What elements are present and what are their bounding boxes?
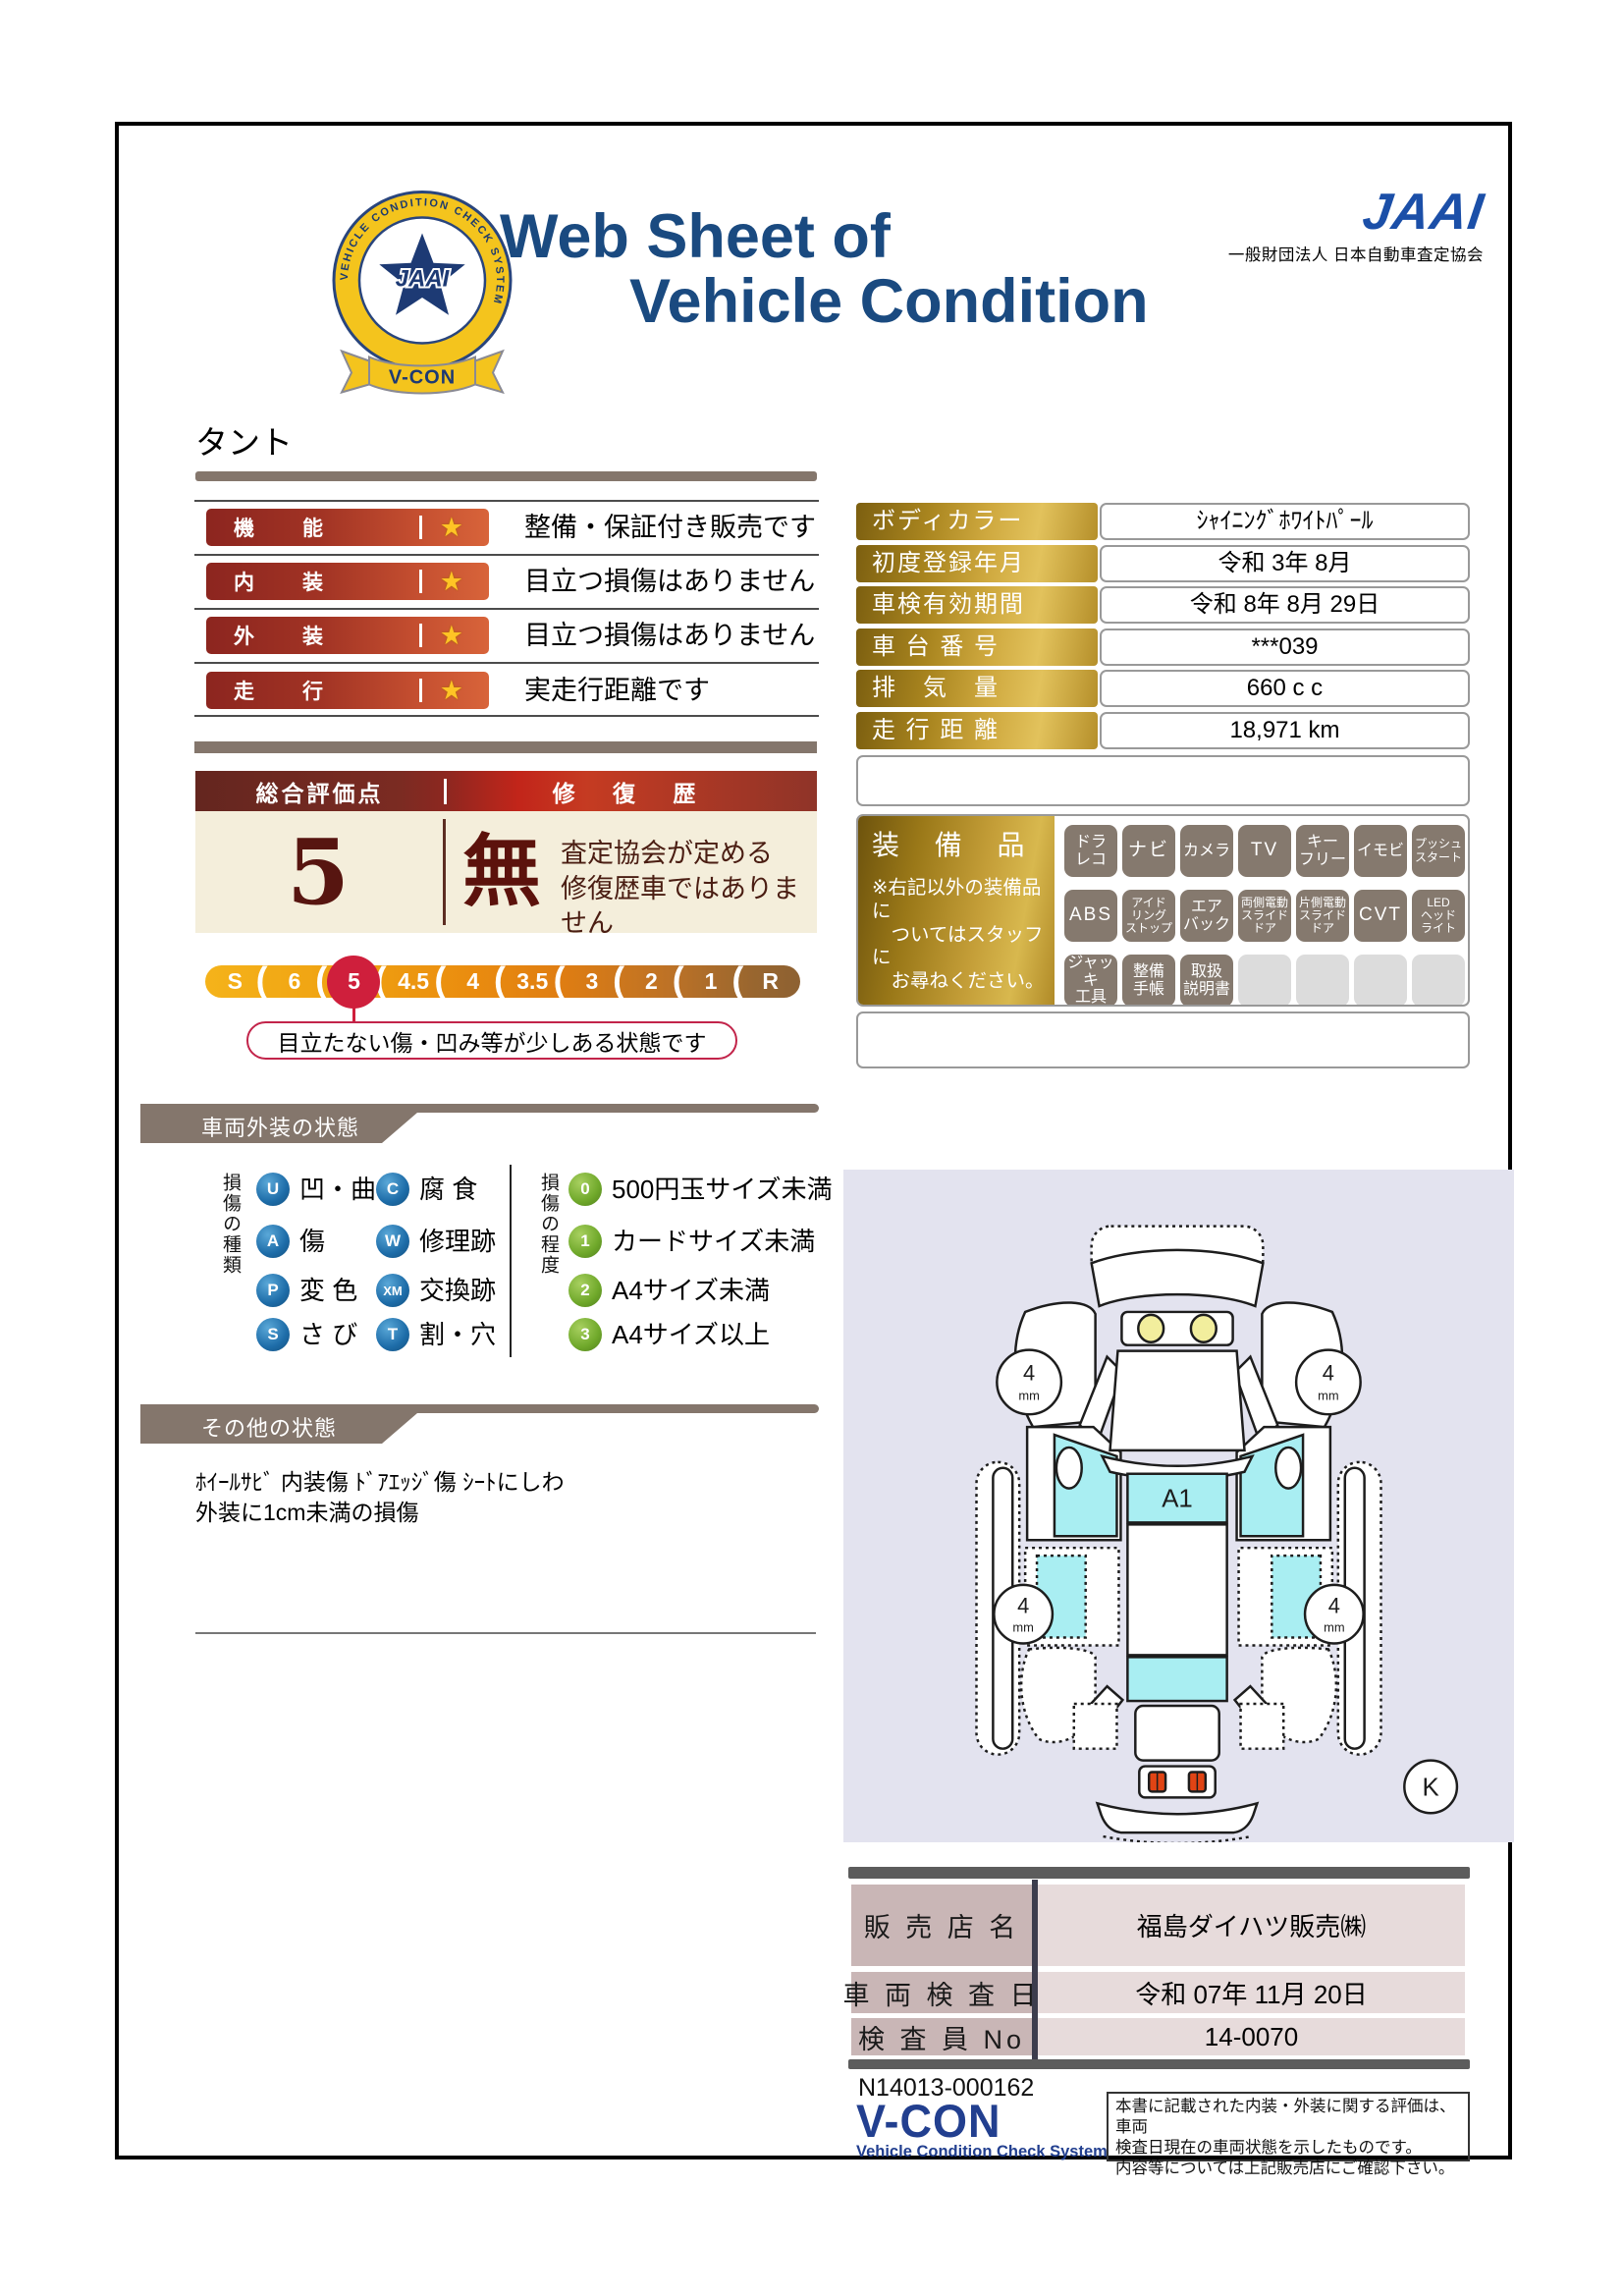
legend-divider xyxy=(510,1165,512,1357)
scale-segment-5-selected: 5 xyxy=(324,965,384,998)
rating-bar: 内 装 ★ xyxy=(206,563,489,600)
tire-depth-unit: mm xyxy=(1018,1388,1039,1402)
inspector-no-label: 検 査 員 No xyxy=(851,2018,1032,2055)
damage-type-icon-s: S xyxy=(256,1318,290,1351)
rating-description: 実走行距離です xyxy=(524,672,710,709)
equipment-badge-jack-tools: ジャッキ 工具 xyxy=(1064,955,1117,1007)
vcon-badge-icon: VEHICLE CONDITION CHECK SYSTEM JAAI V-CO… xyxy=(318,183,526,413)
damage-type-axis-label: 損傷の種類 xyxy=(217,1173,243,1369)
equipment-note: ※右記以外の装備品に ついてはスタッフに お尋ねください。 xyxy=(872,877,1055,994)
equipment-badge-owners-manual: 取扱 説明書 xyxy=(1180,955,1233,1007)
disclaimer-line3: 内容等については上記販売店にご確認下さい。 xyxy=(1115,2159,1461,2179)
repair-note-line1: 査定協会が定める xyxy=(561,837,817,872)
rating-divider xyxy=(419,624,422,647)
info-label-first-registration: 初度登録年月 xyxy=(856,545,1098,582)
grade-scale-bar: S 6 5 4.5 4 3.5 3 2 1 R xyxy=(205,965,800,998)
equipment-badge-idling-stop: アイド リング ストップ xyxy=(1122,890,1175,942)
info-value-first-registration: 令和 3年 8月 xyxy=(1100,545,1470,582)
equipment-title: 装 備 品 xyxy=(872,824,1055,863)
damage-type-label: 割・穴 xyxy=(419,1318,496,1351)
rating-row-interior: 内 装 ★ 目立つ損傷はありません xyxy=(194,563,819,600)
rating-label: 機 能 xyxy=(206,513,337,542)
disclaimer-line2: 検査日現在の車両状態を示したものです。 xyxy=(1115,2138,1461,2159)
damage-degree-icon-2: 2 xyxy=(568,1274,602,1307)
overall-score-value: 5 xyxy=(195,817,441,927)
section-bar xyxy=(140,1404,819,1413)
repair-note-line2: 修復歴車ではありません xyxy=(561,872,817,942)
vcon-badge-logo: VEHICLE CONDITION CHECK SYSTEM JAAI V-CO… xyxy=(318,183,526,413)
overall-score-header: 総合評価点 修 復 歴 xyxy=(195,771,817,811)
equipment-badge-empty xyxy=(1354,955,1407,1007)
inspection-date-value: 令和 07年 11月 20日 xyxy=(1038,1972,1465,2013)
rating-label: 内 装 xyxy=(206,567,337,596)
damage-degree-label: A4サイズ以上 xyxy=(612,1318,770,1351)
divider-line xyxy=(194,715,819,717)
other-condition-text: ﾎｲｰﾙｻﾋﾞ 内装傷 ﾄﾞｱｴｯｼﾞ傷 ｼｰﾄにしわ 外装に1cm未満の損傷 xyxy=(195,1467,565,1528)
damage-type-label: 腐 食 xyxy=(419,1173,477,1206)
info-value-displacement: 660 c c xyxy=(1100,670,1470,707)
tire-depth-front-right: 4 xyxy=(1323,1360,1334,1385)
rating-divider xyxy=(419,570,422,593)
rating-row-exterior: 外 装 ★ 目立つ損傷はありません xyxy=(194,617,819,654)
equipment-badge-service-book: 整備 手帳 xyxy=(1122,955,1175,1007)
rating-description: 目立つ損傷はありません xyxy=(524,563,815,600)
section-title: その他の状態 xyxy=(140,1413,417,1444)
section-exterior-condition: 車両外装の状態 xyxy=(140,1104,819,1143)
rating-bar: 走 行 ★ xyxy=(206,672,489,709)
body-divider xyxy=(443,819,446,925)
sheet-title-line1: Web Sheet of xyxy=(500,204,1149,269)
rating-description: 目立つ損傷はありません xyxy=(524,617,815,654)
badge-center-text: JAAI xyxy=(396,266,451,293)
info-value-mileage: 18,971 km xyxy=(1100,712,1470,749)
divider-rule xyxy=(848,2059,1470,2069)
damage-degree-icon-0: 0 xyxy=(568,1173,602,1206)
rating-divider xyxy=(419,516,422,539)
rating-description: 整備・保証付き販売です xyxy=(524,509,816,546)
repair-history-note: 査定協会が定める 修復歴車ではありません xyxy=(561,837,817,942)
tire-depth-unit: mm xyxy=(1324,1620,1344,1635)
equipment-badge-abs: ABS xyxy=(1064,890,1117,942)
tire-depth-front-left: 4 xyxy=(1023,1360,1035,1385)
car-diagram-svg: A1 4 mm 4 mm 4 mm 4 mm K xyxy=(843,1170,1514,1842)
overall-score-body: 5 無 査定協会が定める 修復歴車ではありません xyxy=(195,811,817,933)
equipment-badge-dashcam: ドラ レコ xyxy=(1064,825,1117,877)
info-label-body-color: ボディカラー xyxy=(856,503,1098,540)
jaai-logo: JAAI xyxy=(1175,187,1487,238)
damage-type-icon-c: C xyxy=(376,1173,409,1206)
rating-bar: 機 能 ★ xyxy=(206,509,489,546)
rating-divider xyxy=(419,679,422,702)
info-label-inspection-validity: 車検有効期間 xyxy=(856,586,1098,624)
divider-line xyxy=(195,1632,816,1634)
divider-line xyxy=(194,500,819,502)
equipment-badge-camera: カメラ xyxy=(1180,825,1233,877)
equipment-badge-both-power-slide-door: 両側電動 スライド ドア xyxy=(1238,890,1291,942)
damage-type-icon-xm: XM xyxy=(376,1274,409,1307)
equipment-gold-panel: 装 備 品 ※右記以外の装備品に ついてはスタッフに お尋ねください。 xyxy=(858,816,1055,1005)
tire-depth-unit: mm xyxy=(1012,1620,1033,1635)
damage-degree-label: カードサイズ未満 xyxy=(612,1225,815,1258)
org-name: 一般財団法人 日本自動車査定協会 xyxy=(1179,242,1484,265)
car-damage-diagram: A1 4 mm 4 mm 4 mm 4 mm K xyxy=(843,1170,1514,1842)
damage-type-label: 凹・曲 xyxy=(299,1173,376,1206)
inspector-no-value: 14-0070 xyxy=(1038,2018,1465,2055)
equipment-badge-airbag: エア バック xyxy=(1180,890,1233,942)
equipment-badge-immobilizer: イモビ xyxy=(1354,825,1407,877)
damage-type-icon-a: A xyxy=(256,1225,290,1258)
damage-type-label: 変 色 xyxy=(299,1274,357,1307)
equipment-badge-tv: TV xyxy=(1238,825,1291,877)
damage-type-label: さ び xyxy=(299,1318,357,1351)
damage-type-label: 修理跡 xyxy=(419,1225,496,1258)
divider-line xyxy=(194,554,819,556)
repair-history-value: 無 xyxy=(462,827,541,917)
other-condition-line2: 外装に1cm未満の損傷 xyxy=(195,1498,565,1528)
damage-type-icon-p: P xyxy=(256,1274,290,1307)
equipment-badge-cvt: CVT xyxy=(1354,890,1407,942)
equipment-badge-keyfree: キー フリー xyxy=(1296,825,1349,877)
damage-type-icon-t: T xyxy=(376,1318,409,1351)
rating-label: 走 行 xyxy=(206,676,337,705)
damage-type-label: 交換跡 xyxy=(419,1274,496,1307)
info-label-mileage: 走 行 距 離 xyxy=(856,712,1098,749)
section-other-condition: その他の状態 xyxy=(140,1404,819,1444)
divider-line xyxy=(194,662,819,664)
divider-line xyxy=(194,608,819,610)
damage-degree-icon-3: 3 xyxy=(568,1318,602,1351)
info-value-body-color: ｼｬｲﾆﾝｸﾞﾎﾜｲﾄﾊﾟｰﾙ xyxy=(1100,503,1470,540)
damage-type-label: 傷 xyxy=(299,1225,325,1258)
vcon-logo: V-CON xyxy=(856,2098,1001,2144)
equipment-badge-empty xyxy=(1296,955,1349,1007)
equipment-badge-empty xyxy=(1238,955,1291,1007)
rating-row-function: 機 能 ★ 整備・保証付き販売です xyxy=(194,509,819,546)
dealer-name-value: 福島ダイハツ販売㈱ xyxy=(1038,1885,1465,1966)
damage-type-icon-w: W xyxy=(376,1225,409,1258)
equipment-badge-grid: ドラ レコ ナビ カメラ TV キー フリー イモビ プッシュ スタート ABS… xyxy=(1064,825,1465,1007)
equipment-panel: 装 備 品 ※右記以外の装備品に ついてはスタッフに お尋ねください。 ドラ レ… xyxy=(856,814,1470,1007)
equipment-badge-pushstart: プッシュ スタート xyxy=(1412,825,1465,877)
overall-score-label: 総合評価点 xyxy=(195,775,444,808)
info-empty-box xyxy=(856,755,1470,806)
dealer-label: 販 売 店 名 xyxy=(851,1885,1032,1966)
tire-depth-rear-left: 4 xyxy=(1017,1594,1029,1618)
damage-degree-label: A4サイズ未満 xyxy=(612,1274,770,1307)
disclaimer-line1: 本書に記載された内装・外装に関する評価は、車両 xyxy=(1115,2097,1461,2138)
star-icon: ★ xyxy=(440,567,463,597)
sheet-border: VEHICLE CONDITION CHECK SYSTEM JAAI V-CO… xyxy=(115,122,1512,2159)
corner-mark-k: K xyxy=(1423,1774,1439,1801)
damage-degree-icon-1: 1 xyxy=(568,1225,602,1258)
info-label-displacement: 排 気 量 xyxy=(856,670,1098,707)
divider-rule xyxy=(848,1867,1470,1879)
vcon-logo-subtitle: Vehicle Condition Check System xyxy=(856,2143,1108,2161)
divider-rule xyxy=(195,471,817,481)
damage-type-icon-u: U xyxy=(256,1173,290,1206)
rating-row-mileage: 走 行 ★ 実走行距離です xyxy=(194,672,819,709)
info-value-inspection-validity: 令和 8年 8月 29日 xyxy=(1100,586,1470,624)
equipment-badge-led-headlight: LED ヘッド ライト xyxy=(1412,890,1465,942)
inspection-date-label: 車 両 検 査 日 xyxy=(851,1972,1032,2013)
other-condition-line1: ﾎｲｰﾙｻﾋﾞ 内装傷 ﾄﾞｱｴｯｼﾞ傷 ｼｰﾄにしわ xyxy=(195,1467,565,1498)
scale-callout: 目立たない傷・凹み等が少しある状態です xyxy=(246,1021,737,1060)
sheet-title: Web Sheet of Vehicle Condition xyxy=(500,204,1149,334)
info-label-chassis-number: 車 台 番 号 xyxy=(856,629,1098,666)
badge-ribbon-text: V-CON xyxy=(389,367,456,389)
divider-rule xyxy=(194,741,817,753)
damage-degree-axis-label: 損傷の程度 xyxy=(535,1173,562,1369)
star-icon: ★ xyxy=(440,621,463,651)
tire-depth-unit: mm xyxy=(1318,1388,1338,1402)
equipment-badge-navi: ナビ xyxy=(1122,825,1175,877)
star-icon: ★ xyxy=(440,676,463,706)
scale-segment-r: R xyxy=(740,965,800,998)
org-block: JAAI 一般財団法人 日本自動車査定協会 xyxy=(1179,187,1484,265)
rating-bar: 外 装 ★ xyxy=(206,617,489,654)
section-bar xyxy=(140,1104,819,1113)
section-title: 車両外装の状態 xyxy=(140,1113,417,1143)
rating-label: 外 装 xyxy=(206,621,337,650)
repair-history-label: 修 復 歴 xyxy=(447,775,817,808)
page: VEHICLE CONDITION CHECK SYSTEM JAAI V-CO… xyxy=(0,0,1623,2296)
info-value-chassis-number: ***039 xyxy=(1100,629,1470,666)
tire-depth-rear-right: 4 xyxy=(1328,1594,1340,1618)
damage-mark-a1: A1 xyxy=(1162,1485,1193,1512)
star-icon: ★ xyxy=(440,513,463,543)
table-divider xyxy=(1032,1880,1038,2060)
vehicle-name: タント xyxy=(195,416,293,464)
disclaimer-box: 本書に記載された内装・外装に関する評価は、車両 検査日現在の車両状態を示したもの… xyxy=(1107,2092,1470,2161)
sheet-title-line2: Vehicle Condition xyxy=(629,269,1149,334)
damage-degree-label: 500円玉サイズ未満 xyxy=(612,1173,833,1206)
equipment-badge-empty xyxy=(1412,955,1465,1007)
equipment-badge-one-power-slide-door: 片側電動 スライド ドア xyxy=(1296,890,1349,942)
equipment-empty-box xyxy=(856,1011,1470,1068)
